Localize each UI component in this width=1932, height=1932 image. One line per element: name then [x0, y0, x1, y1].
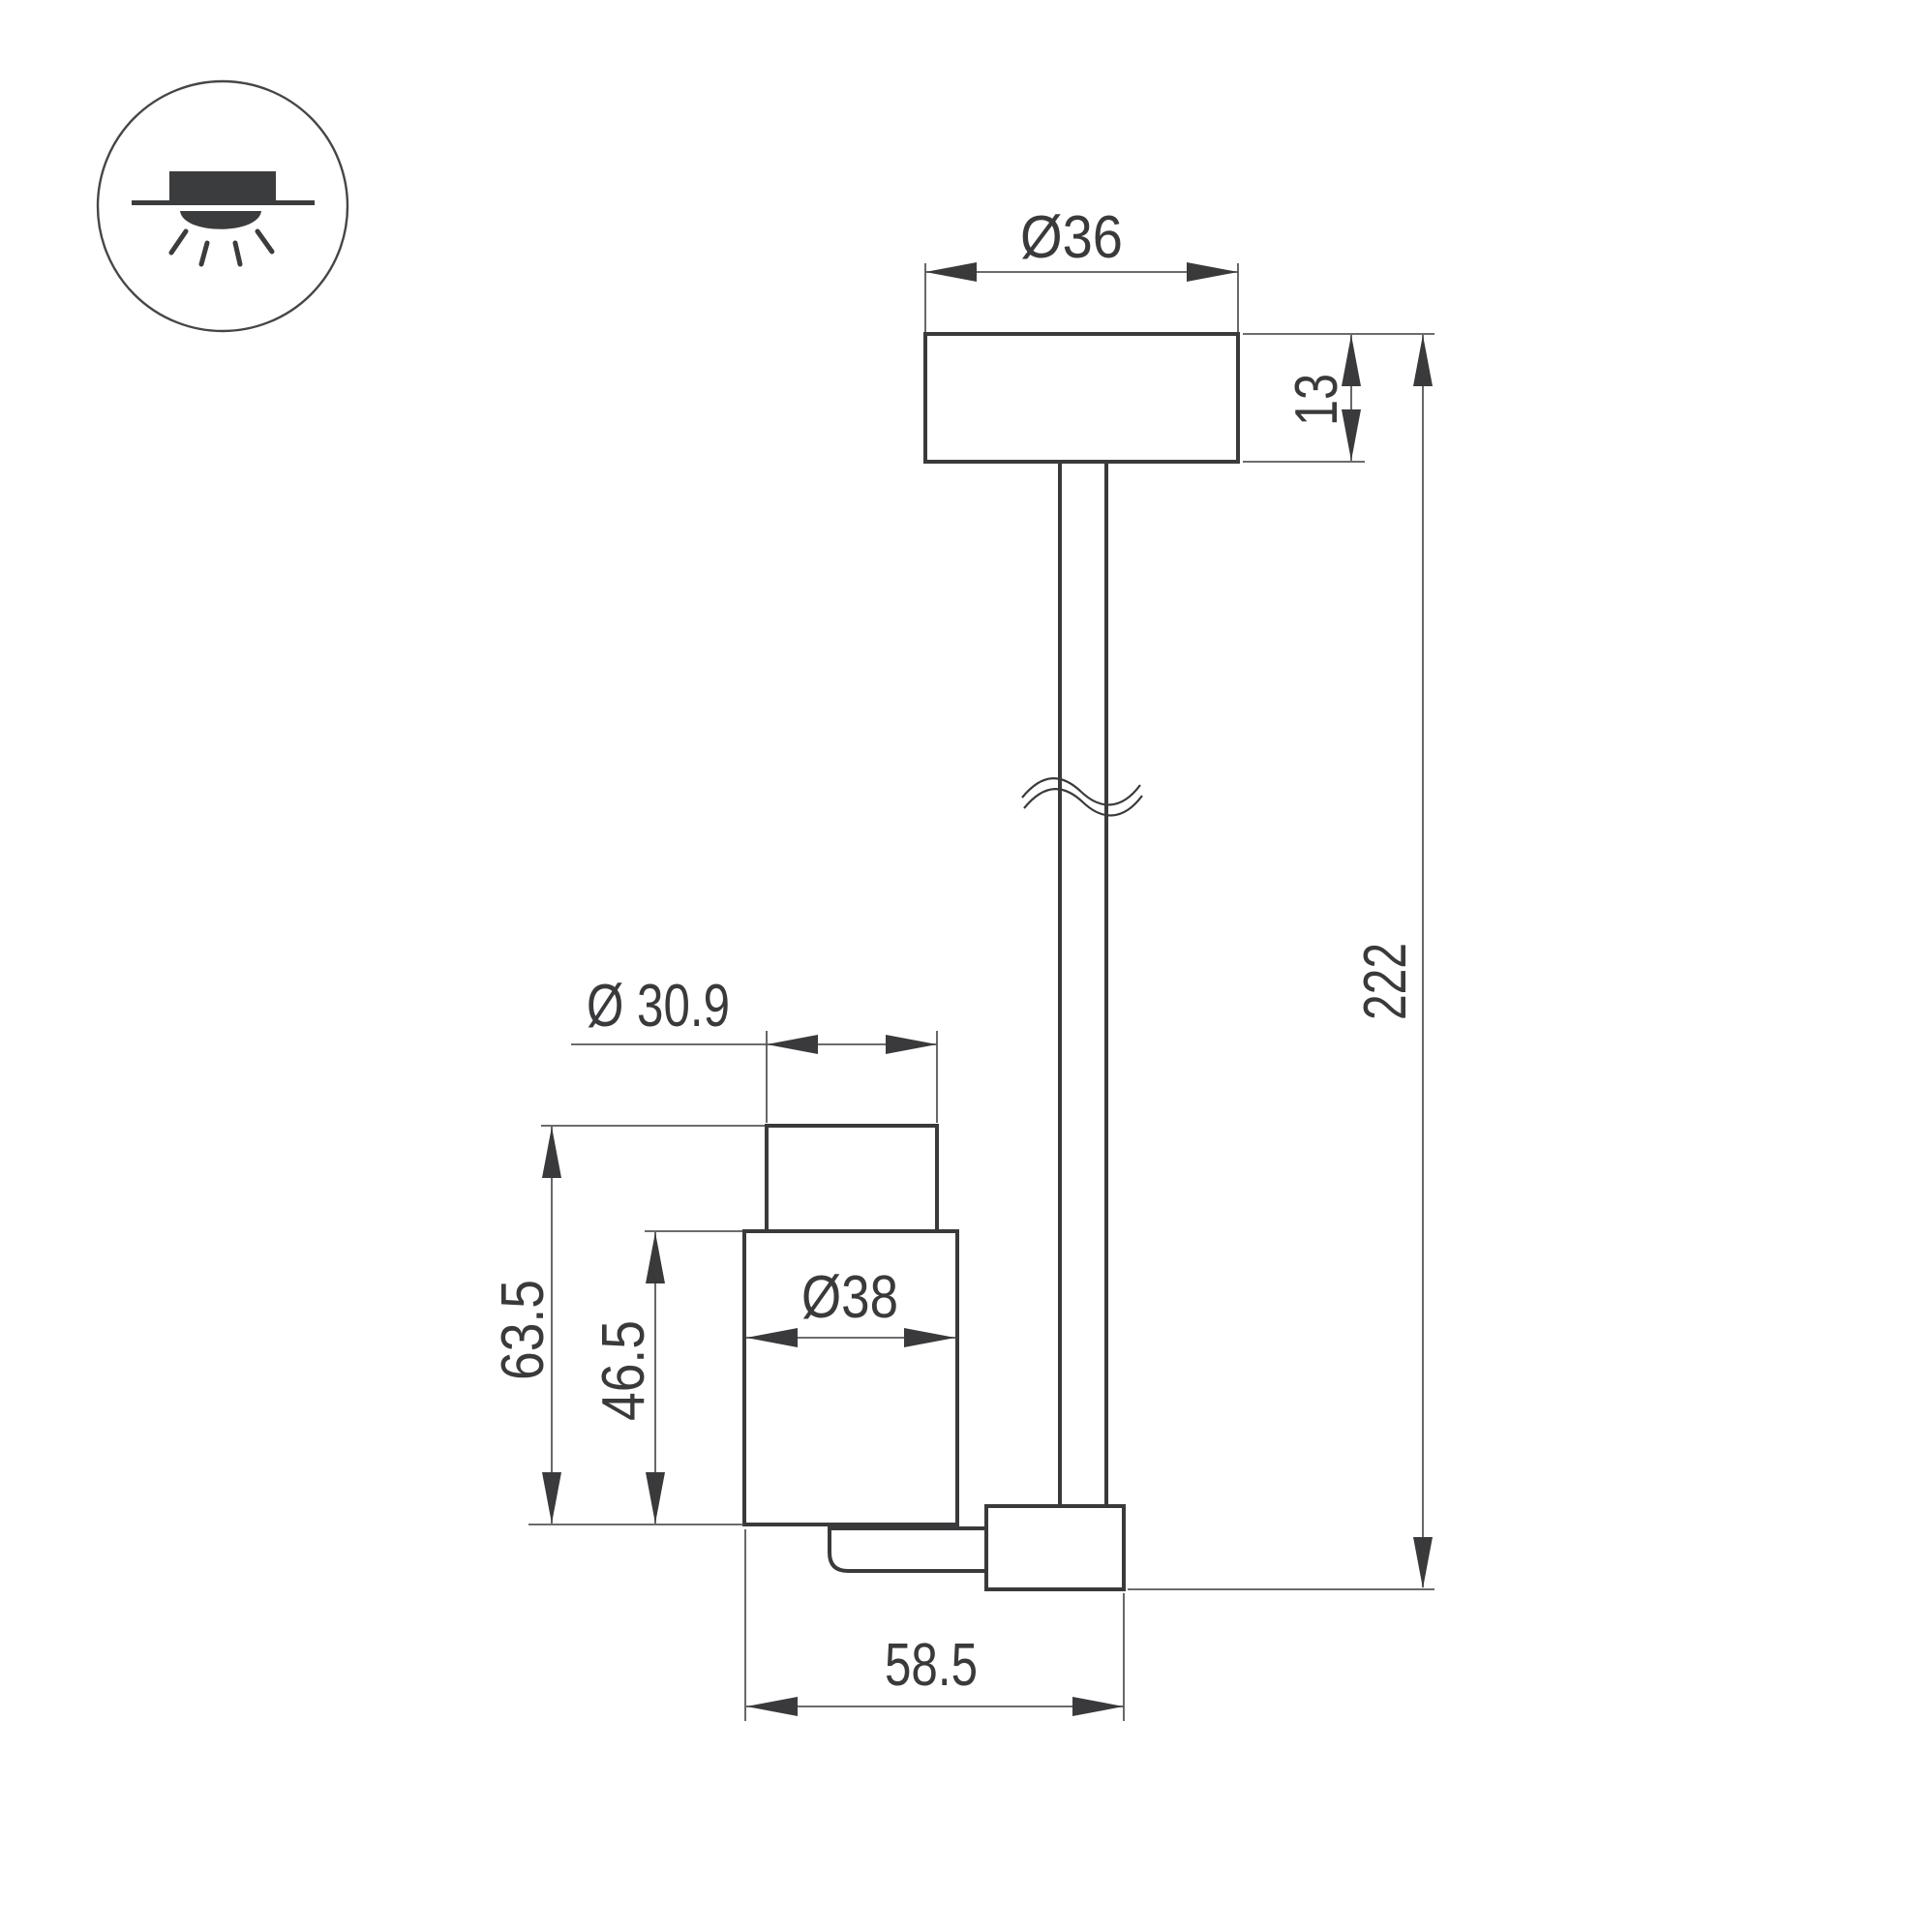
icon-light-dome: [180, 211, 261, 229]
arrow-right-icon: [1187, 262, 1238, 282]
arrow-up-icon: [1413, 335, 1433, 386]
dimension-canopy-diameter: Ø36: [925, 204, 1238, 332]
icon-light-rays: [171, 231, 272, 264]
dim-label-canopy-height: 13: [1283, 374, 1350, 426]
dim-label-head-body-height: 46.5: [590, 1320, 657, 1421]
dim-label-overall-length: 222: [1352, 943, 1419, 1020]
dimension-overall-length: 222: [1128, 335, 1434, 1589]
ceiling-surface-light-icon: [98, 81, 347, 331]
arrow-left-icon: [746, 1697, 798, 1716]
dim-label-head-length: 58.5: [885, 1632, 978, 1699]
icon-circle-border: [98, 81, 347, 331]
dim-label-head-total-height: 63.5: [490, 1280, 557, 1380]
dimension-canopy-height: 13: [1243, 334, 1434, 462]
arrow-left-icon: [925, 262, 977, 282]
dimension-head-front-diameter: Ø 30.9: [571, 973, 937, 1123]
canopy-body: [925, 334, 1238, 462]
dim-label-head-front-diameter: Ø 30.9: [587, 973, 730, 1040]
technical-drawing-page: Ø36 13 222 Ø 30.9 63.5: [0, 0, 1932, 1932]
rod-break-symbol: [1022, 778, 1142, 815]
head-elbow-arm: [830, 1528, 986, 1571]
dim-label-canopy-diameter: Ø36: [1020, 204, 1123, 271]
arrow-right-icon: [886, 1035, 937, 1054]
arrow-down-icon: [646, 1472, 665, 1524]
icon-canopy-block: [169, 171, 276, 201]
rod-connector-box: [986, 1506, 1124, 1589]
arrow-down-icon: [542, 1472, 561, 1524]
arrow-up-icon: [646, 1232, 665, 1283]
arrow-right-icon: [1072, 1697, 1124, 1716]
arrow-down-icon: [1413, 1537, 1433, 1588]
head-front-cylinder: [767, 1126, 937, 1231]
dim-label-head-body-diameter: Ø38: [801, 1264, 898, 1331]
luminaire-dimension-drawing: Ø36 13 222 Ø 30.9 63.5: [0, 0, 1932, 1932]
fixture-outline: [744, 334, 1238, 1589]
arrow-left-icon: [767, 1035, 818, 1054]
dimension-head-body-height: 46.5: [590, 1231, 742, 1524]
arrow-up-icon: [542, 1127, 561, 1178]
